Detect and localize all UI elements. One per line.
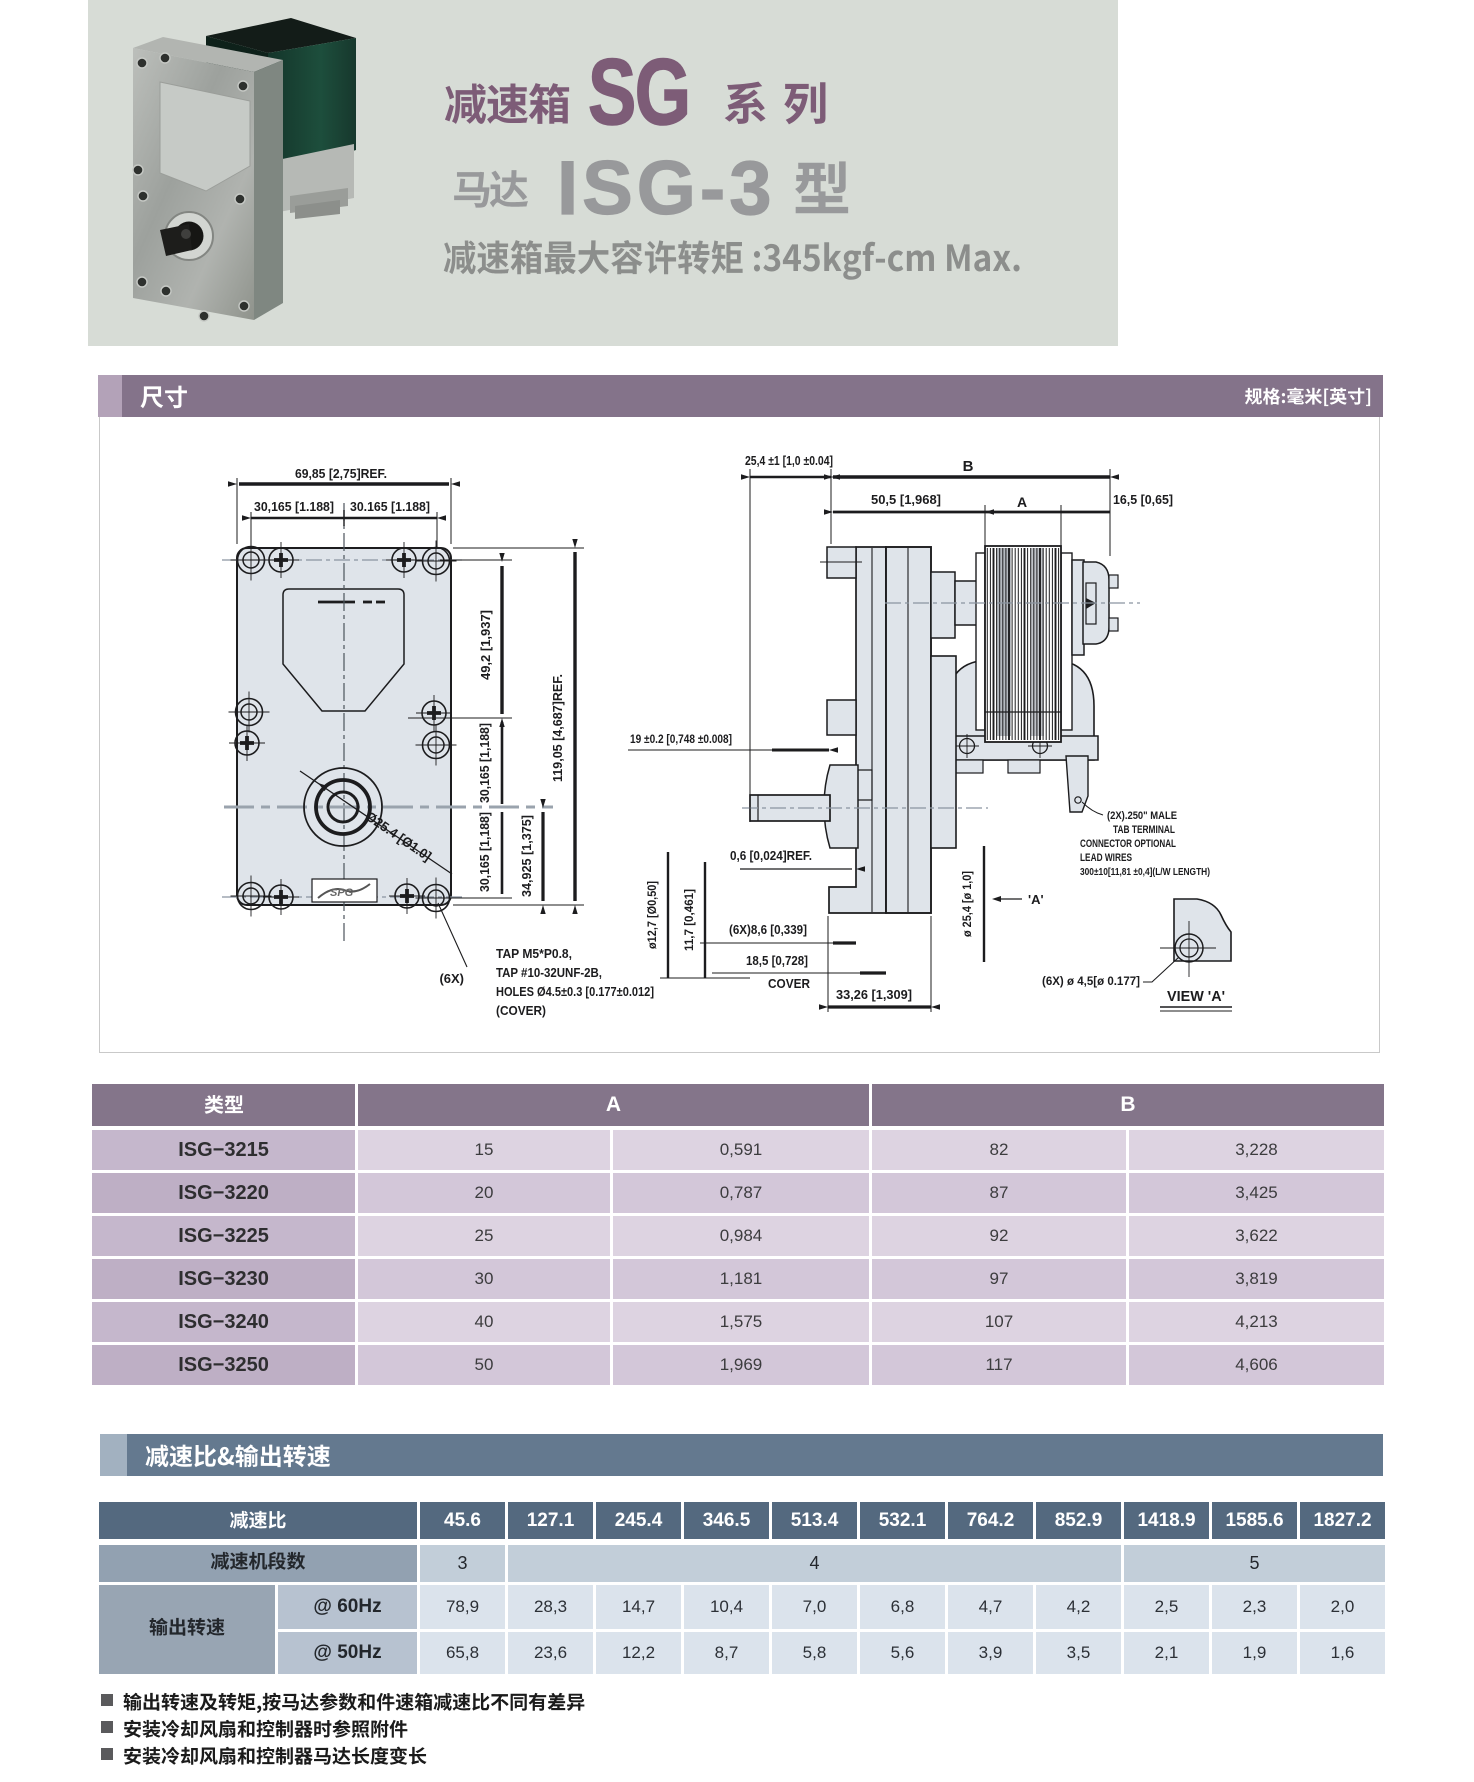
svg-text:(2X).250" MALE: (2X).250" MALE — [1107, 810, 1177, 822]
svg-text:(6X)8,6 [0,339]: (6X)8,6 [0,339] — [729, 922, 807, 937]
svg-text:LEAD WIRES: LEAD WIRES — [1080, 852, 1132, 864]
svg-text:COVER: COVER — [768, 976, 811, 991]
svg-text:30,165 [1,188]: 30,165 [1,188] — [477, 812, 492, 892]
svg-text:25,4 ±1 [1,0 ±0.04]: 25,4 ±1 [1,0 ±0.04] — [745, 454, 833, 468]
svg-text:30,165 [1.188]: 30,165 [1.188] — [254, 499, 334, 514]
svg-text:(COVER): (COVER) — [496, 1003, 546, 1018]
svg-text:0,6 [0,024]REF.: 0,6 [0,024]REF. — [730, 848, 812, 863]
svg-text:(6X): (6X) — [439, 971, 464, 986]
svg-text:TAP M5*P0.8,: TAP M5*P0.8, — [496, 946, 572, 961]
svg-text:VIEW 'A': VIEW 'A' — [1167, 988, 1225, 1005]
svg-text:ø 25,4 [ø 1,0]: ø 25,4 [ø 1,0] — [960, 871, 974, 937]
svg-text:ø12,7 [Ø0,50]: ø12,7 [Ø0,50] — [645, 881, 659, 949]
svg-text:(6X) ø 4,5[ø 0.177]: (6X) ø 4,5[ø 0.177] — [1042, 974, 1140, 988]
svg-text:300±10[11,81 ±0,4](L/W LENGTH): 300±10[11,81 ±0,4](L/W LENGTH) — [1080, 866, 1210, 878]
svg-text:69,85 [2,75]REF.: 69,85 [2,75]REF. — [295, 466, 387, 481]
svg-text:30,165 [1,188]: 30,165 [1,188] — [477, 723, 492, 803]
svg-text:49,2 [1,937]: 49,2 [1,937] — [478, 610, 493, 680]
svg-text:18,5 [0,728]: 18,5 [0,728] — [746, 953, 808, 968]
svg-text:'A': 'A' — [1028, 892, 1044, 907]
svg-text:34,925 [1,375]: 34,925 [1,375] — [519, 815, 534, 897]
svg-text:A: A — [1017, 494, 1027, 510]
svg-text:HOLES Ø4.5±0.3 [0.177±0.012]: HOLES Ø4.5±0.3 [0.177±0.012] — [496, 984, 654, 999]
svg-text:CONNECTOR OPTIONAL: CONNECTOR OPTIONAL — [1080, 838, 1176, 850]
svg-text:TAB TERMINAL: TAB TERMINAL — [1113, 824, 1175, 836]
svg-text:TAP #10-32UNF-2B,: TAP #10-32UNF-2B, — [496, 965, 602, 980]
svg-text:50,5 [1,968]: 50,5 [1,968] — [871, 492, 941, 507]
svg-text:33,26 [1,309]: 33,26 [1,309] — [836, 987, 912, 1002]
svg-text:19 ±0.2 [0,748 ±0.008]: 19 ±0.2 [0,748 ±0.008] — [630, 732, 732, 746]
svg-text:B: B — [963, 458, 974, 475]
svg-text:16,5 [0,65]: 16,5 [0,65] — [1113, 492, 1173, 507]
svg-text:119,05 [4,687]REF.: 119,05 [4,687]REF. — [550, 674, 565, 782]
svg-text:30.165 [1.188]: 30.165 [1.188] — [350, 499, 430, 514]
svg-text:SPG: SPG — [330, 887, 354, 899]
svg-text:11,7 [0,461]: 11,7 [0,461] — [682, 889, 696, 951]
